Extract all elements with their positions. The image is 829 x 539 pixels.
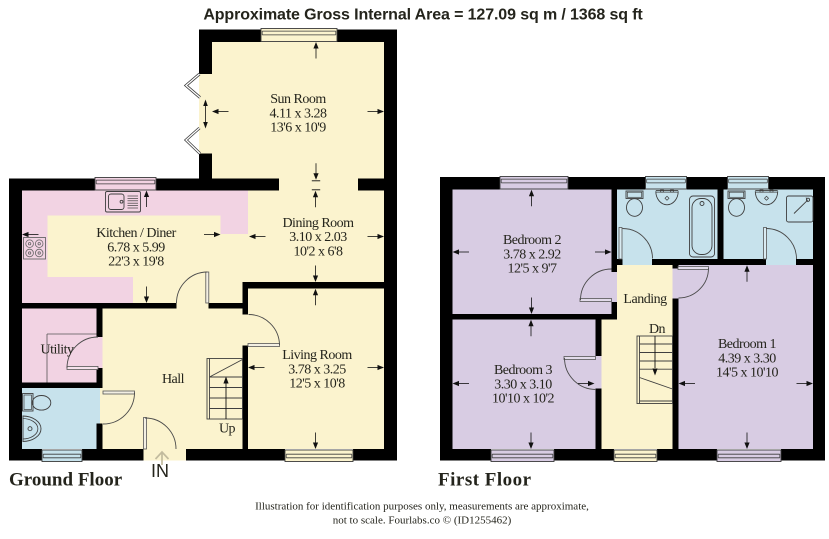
svg-text:3.10 x 2.03: 3.10 x 2.03 xyxy=(289,230,347,245)
svg-text:Dining Room: Dining Room xyxy=(282,216,354,231)
svg-text:3.30 x 3.10: 3.30 x 3.10 xyxy=(494,377,552,392)
svg-text:10'10 x 10'2: 10'10 x 10'2 xyxy=(492,392,555,407)
svg-text:3.78 x 3.25: 3.78 x 3.25 xyxy=(288,362,346,377)
svg-text:4.11 x 3.28: 4.11 x 3.28 xyxy=(270,106,327,121)
svg-text:Bedroom 3: Bedroom 3 xyxy=(494,363,553,378)
svg-text:Living Room: Living Room xyxy=(282,348,352,363)
svg-text:Illustration for identificatio: Illustration for identification purposes… xyxy=(255,501,589,513)
svg-text:Up: Up xyxy=(219,422,236,437)
svg-text:12'5 x 9'7: 12'5 x 9'7 xyxy=(507,262,557,277)
svg-text:not to scale. Fourlabs.co © (I: not to scale. Fourlabs.co © (ID1255462) xyxy=(333,515,512,527)
svg-text:Bedroom 1: Bedroom 1 xyxy=(718,337,777,352)
svg-text:IN: IN xyxy=(151,461,169,481)
svg-text:Bedroom 2: Bedroom 2 xyxy=(503,233,562,248)
svg-text:Sun Room: Sun Room xyxy=(270,92,326,107)
svg-text:10'2 x 6'8: 10'2 x 6'8 xyxy=(293,244,343,259)
svg-text:Landing: Landing xyxy=(623,292,667,307)
svg-text:Utility: Utility xyxy=(40,343,74,358)
svg-text:3.78 x 2.92: 3.78 x 2.92 xyxy=(503,247,561,262)
svg-text:Hall: Hall xyxy=(162,372,185,387)
svg-text:13'6 x 10'9: 13'6 x 10'9 xyxy=(270,121,326,136)
svg-text:14'5 x 10'10: 14'5 x 10'10 xyxy=(716,366,779,381)
svg-text:6.78 x 5.99: 6.78 x 5.99 xyxy=(107,240,165,255)
svg-text:Ground Floor: Ground Floor xyxy=(9,470,123,491)
svg-text:First Floor: First Floor xyxy=(438,470,532,491)
svg-text:12'5 x 10'8: 12'5 x 10'8 xyxy=(289,377,345,392)
svg-text:Kitchen / Diner: Kitchen / Diner xyxy=(96,226,176,241)
svg-text:Approximate Gross Internal Are: Approximate Gross Internal Area = 127.09… xyxy=(203,7,643,24)
svg-text:Dn: Dn xyxy=(649,322,666,337)
svg-text:4.39 x 3.30: 4.39 x 3.30 xyxy=(718,351,776,366)
svg-text:22'3 x 19'8: 22'3 x 19'8 xyxy=(108,255,164,270)
